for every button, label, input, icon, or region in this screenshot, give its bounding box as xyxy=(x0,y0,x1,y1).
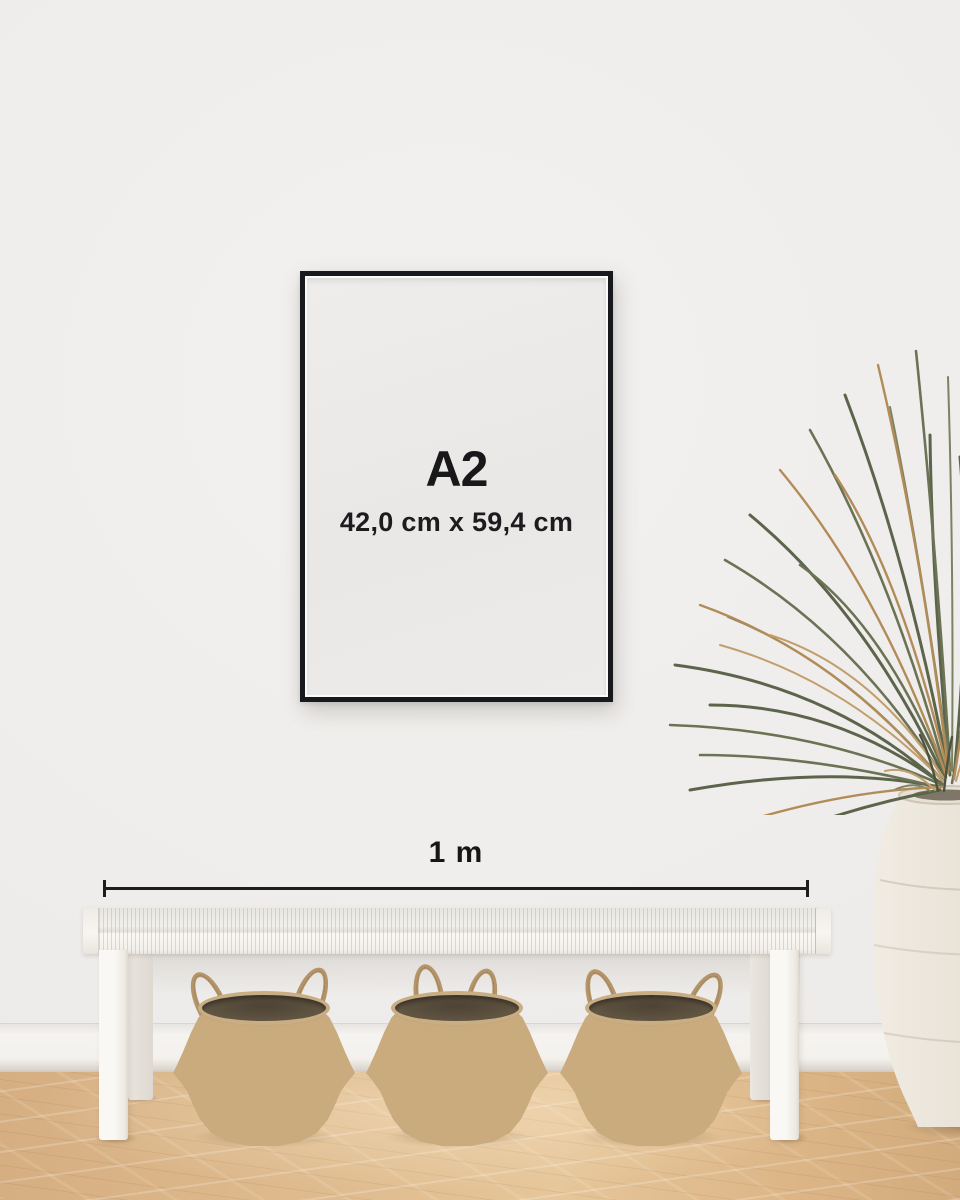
bench-leg-rear-left xyxy=(128,952,153,1100)
scale-bar-right-tick xyxy=(806,880,809,897)
poster-paper: A2 42,0 cm x 59,4 cm xyxy=(305,276,608,697)
bench-seat xyxy=(83,908,831,954)
mockup-scene: A2 42,0 cm x 59,4 cm 1 m xyxy=(0,0,960,1200)
bench-endcap-left xyxy=(83,908,98,954)
basket-body xyxy=(173,1000,355,1146)
white-floor-vase xyxy=(870,785,960,1135)
basket-body xyxy=(366,1000,548,1146)
bench-leg-front-left xyxy=(99,950,128,1140)
scale-bar-left-tick xyxy=(103,880,106,897)
bench-endcap-right xyxy=(816,908,831,954)
seagrass-basket-middle xyxy=(366,1000,548,1146)
poster-dimensions-label: 42,0 cm x 59,4 cm xyxy=(305,506,608,538)
basket-rim xyxy=(395,995,519,1021)
scale-bar-line xyxy=(103,887,809,890)
dried-palm-plant xyxy=(630,335,960,815)
poster-size-label: A2 xyxy=(305,444,608,494)
seagrass-basket-left xyxy=(173,1000,355,1146)
poster-frame: A2 42,0 cm x 59,4 cm xyxy=(300,271,613,702)
bench-leg-front-right xyxy=(770,950,799,1140)
seagrass-basket-right xyxy=(560,1000,742,1146)
scale-bar-label: 1 m xyxy=(103,836,809,870)
basket-rim xyxy=(589,995,713,1021)
basket-body xyxy=(560,1000,742,1146)
basket-rim xyxy=(202,995,326,1021)
